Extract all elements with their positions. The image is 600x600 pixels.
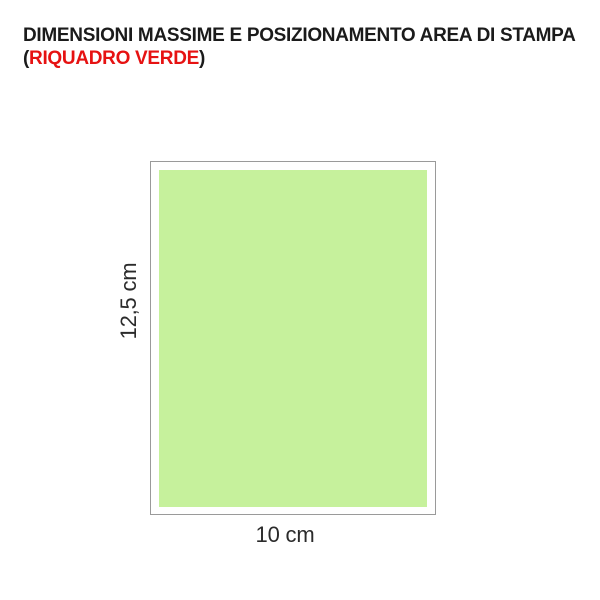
width-dimension-label: 10 cm: [256, 522, 315, 548]
product-outline-box: [150, 161, 436, 515]
print-area-diagram: 12,5 cm 10 cm: [0, 0, 600, 600]
page: DIMENSIONI MASSIME E POSIZIONAMENTO AREA…: [0, 0, 600, 600]
height-dimension-label: 12,5 cm: [116, 263, 142, 340]
print-area-rect: [159, 170, 427, 507]
